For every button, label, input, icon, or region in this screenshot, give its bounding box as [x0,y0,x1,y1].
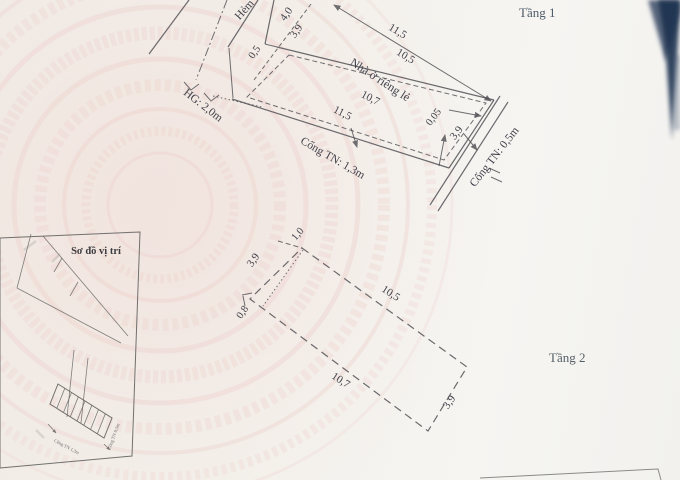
dim-bottom: 10,7 [329,370,352,391]
bottom-frame-edge [480,469,661,480]
alley-label: Hẻm [233,0,257,22]
photo-background-edge [648,0,680,140]
floor1-label: Tầng 1 [519,5,555,20]
dim-lot-bottom: 11,5 [331,104,354,123]
dim-left-width: 3,9 [245,251,263,270]
floor2-label: Tầng 2 [549,350,585,365]
survey-drawing-page: Tầng 1 Hẻm 4,0 3,9 0,5 HG: 2,0m 11,5 10,… [0,0,680,480]
dimension-end-tick [491,177,502,182]
floor1-plan: Tầng 1 Hẻm 4,0 3,9 0,5 HG: 2,0m 11,5 10,… [149,0,555,211]
floor2-outline-dashed [250,248,467,431]
dim-right-width: 3,9 [448,124,466,143]
offset-right-arrow [449,110,481,116]
location-inset: Sơ đồ vị trí Cống TN 1,3m Cống TN 0,5m [0,232,140,468]
inset-title: Sơ đồ vị trí [71,246,122,257]
drawing-canvas: Tầng 1 Hẻm 4,0 3,9 0,5 HG: 2,0m 11,5 10,… [0,0,680,480]
dim-right-width: 3,9 [441,393,459,412]
right-width-arrow [439,135,445,166]
alley-side-line [229,48,233,98]
